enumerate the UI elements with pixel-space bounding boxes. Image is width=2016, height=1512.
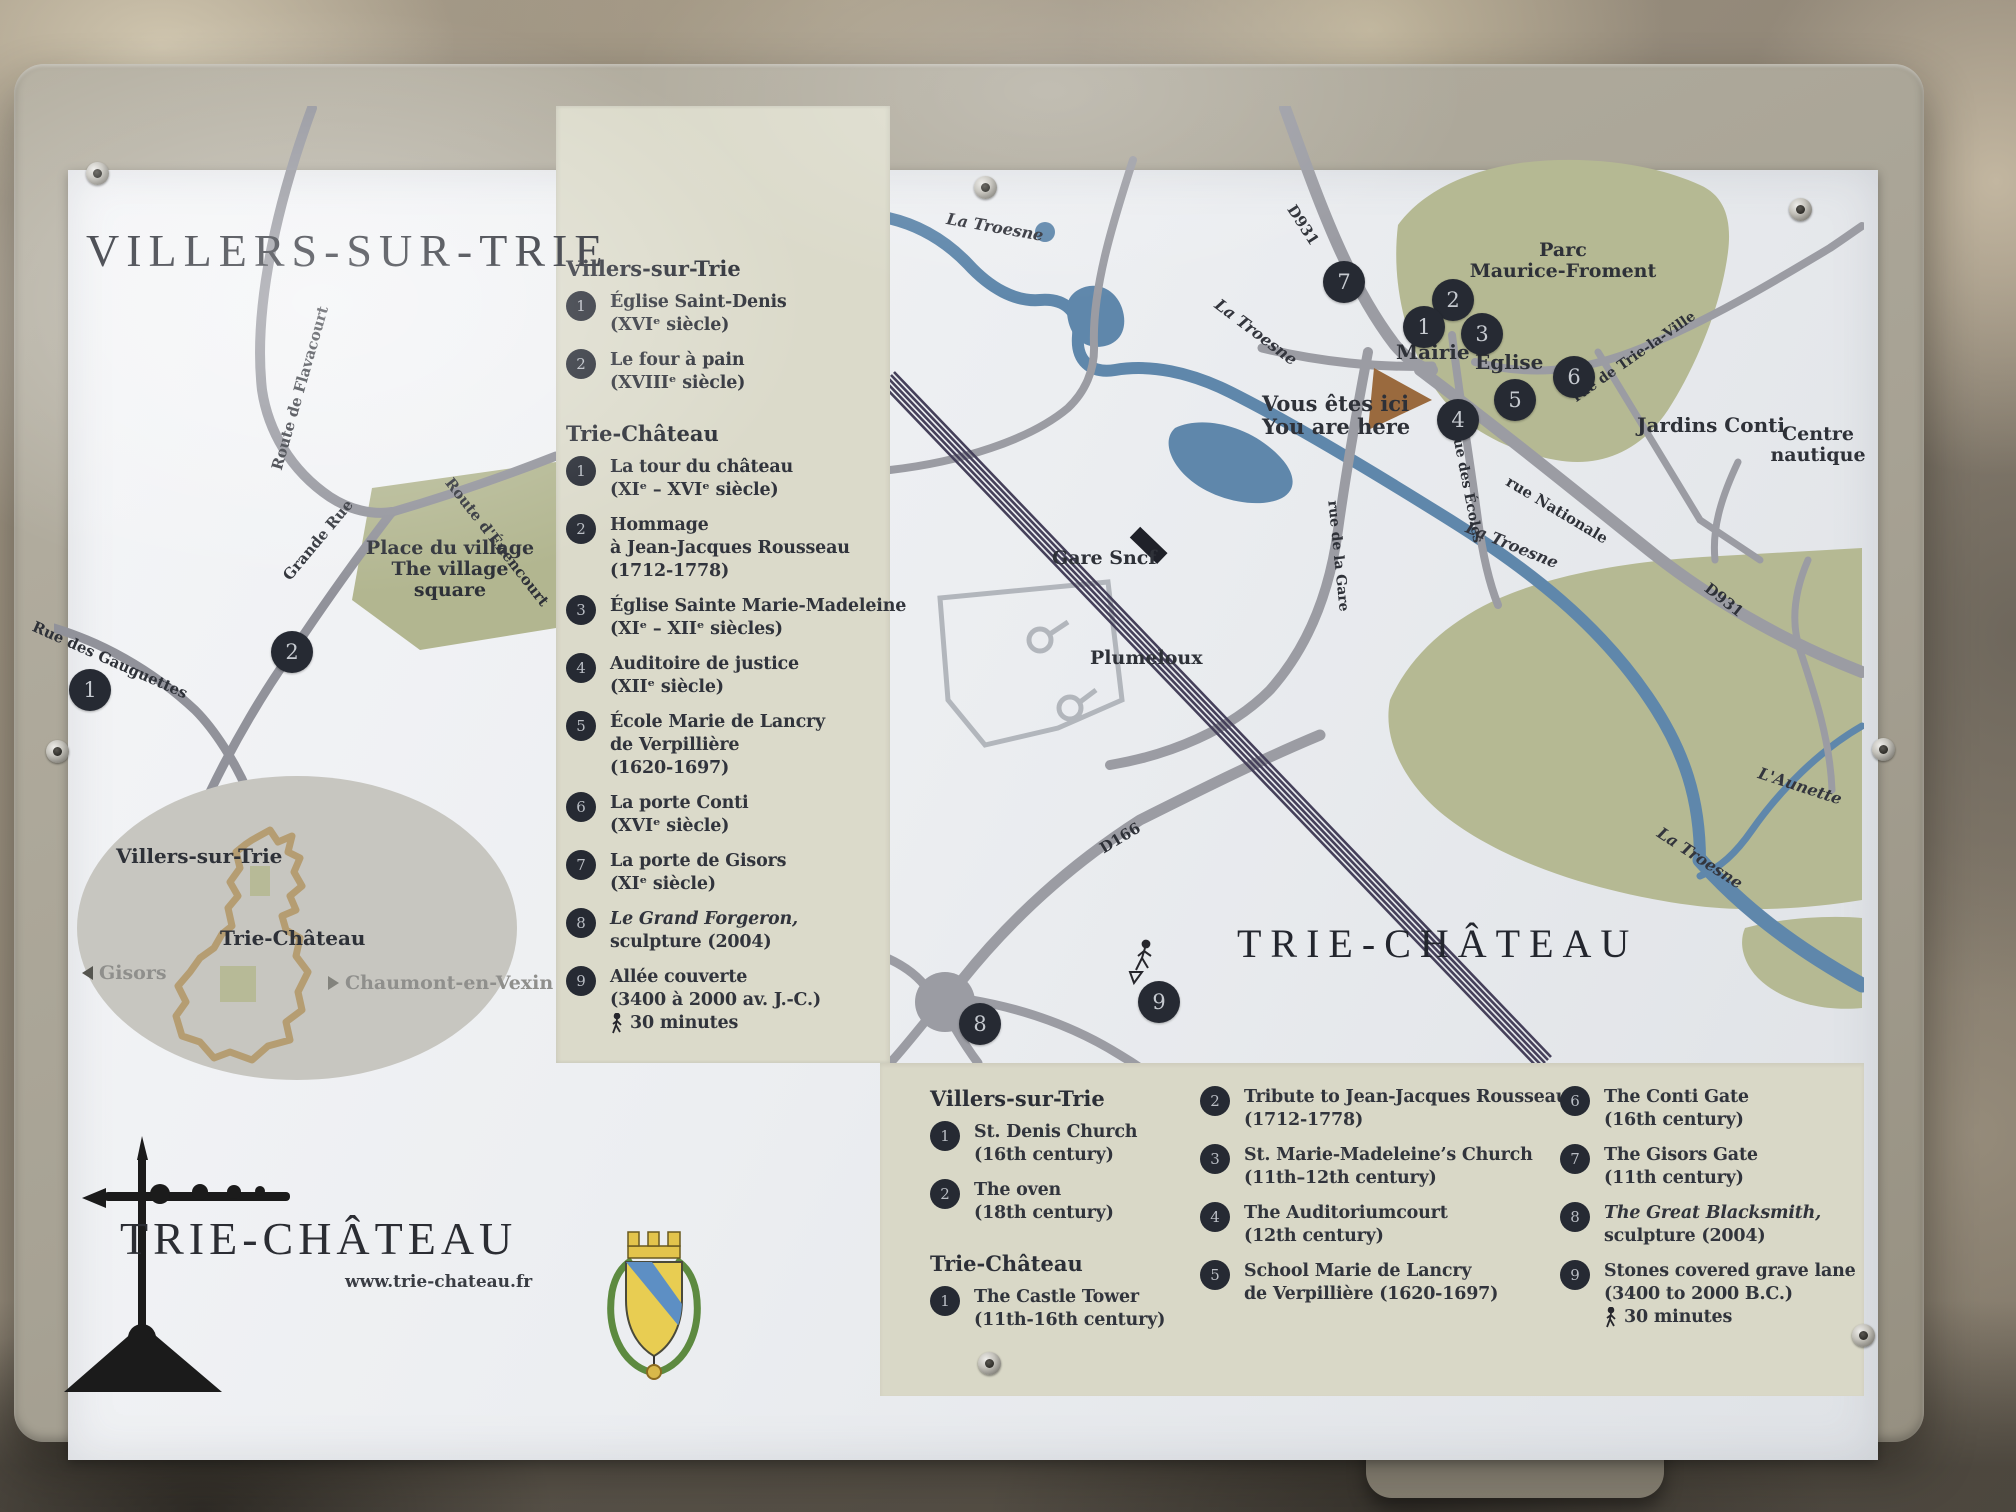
inset-label-trie: Trie-Château <box>220 928 365 949</box>
item-line: Auditoire de justice <box>610 653 799 676</box>
legend-item: 1 St. Denis Church(16th century) <box>930 1121 1210 1167</box>
item-line: (1712-1778) <box>1244 1109 1568 1132</box>
map-marker-7: 7 <box>1323 261 1365 303</box>
item-line: (XVIIIᵉ siècle) <box>610 372 745 395</box>
english-legend-col3: 6 The Conti Gate(16th century) 7 The Gis… <box>1560 1086 1860 1341</box>
left-map-title: VILLERS-SUR-TRIE <box>86 224 609 277</box>
inset-label-gisors: Gisors <box>99 962 167 984</box>
parc-line1: Parc <box>1470 240 1657 261</box>
item-line: (16th century) <box>974 1144 1137 1167</box>
legend-item: 3 Église Sainte Marie-Madeleine(XIᵉ – XI… <box>566 595 882 641</box>
map-marker-9: 9 <box>1138 981 1180 1023</box>
parc-line2: Maurice-Froment <box>1470 261 1657 282</box>
inset-direction-chaumont: Chaumont-en-Vexin <box>328 972 553 994</box>
screw-top-center <box>974 176 997 199</box>
item-line: Le four à pain <box>610 349 745 372</box>
walking-trail-icon <box>1130 941 1151 983</box>
item-line: (XVIᵉ siècle) <box>610 314 787 337</box>
item-line: (3400 à 2000 av. J.-C.) <box>610 989 821 1012</box>
centre-line1: Centre <box>1770 424 1865 445</box>
item-line: (12th century) <box>1244 1225 1448 1248</box>
item-line: The Great Blacksmith, <box>1604 1202 1821 1225</box>
legend-item: 1 La tour du château(XIᵉ – XVIᵉ siècle) <box>566 456 882 502</box>
walking-icon <box>1604 1307 1618 1329</box>
gare-sncf-label: Gare Sncf <box>1052 548 1157 569</box>
legend-item: 1 The Castle Tower(11th-16th century) <box>930 1286 1210 1332</box>
item-line: sculpture (2004) <box>610 931 798 954</box>
legend-item: 6 The Conti Gate(16th century) <box>1560 1086 1860 1132</box>
legend-item: 4 Auditoire de justice(XIIᵉ siècle) <box>566 653 882 699</box>
inset-label-chaumont: Chaumont-en-Vexin <box>345 972 553 994</box>
legend-marker-2: 2 <box>566 349 596 379</box>
item-line: (XVIᵉ siècle) <box>610 815 748 838</box>
item-line: (18th century) <box>974 1202 1114 1225</box>
item-line: Église Saint-Denis <box>610 291 787 314</box>
item-line: St. Denis Church <box>974 1121 1137 1144</box>
trie-chateau-map-title: TRIE-CHÂTEAU <box>1237 920 1638 967</box>
legend-marker-6: 6 <box>1560 1086 1590 1116</box>
legend-en-villers-title: Villers-sur-Trie <box>930 1086 1210 1111</box>
legend-item: 2 Tribute to Jean-Jacques Rousseau(1712-… <box>1200 1086 1540 1132</box>
item-line: Allée couverte <box>610 966 821 989</box>
item-line: (16th century) <box>1604 1109 1749 1132</box>
village-square-label: Place du village The village square <box>366 538 534 601</box>
item-line: The oven <box>974 1179 1114 1202</box>
item-line: de Verpillière <box>610 734 825 757</box>
item-line: (XIᵉ siècle) <box>610 873 786 896</box>
jardins-conti-label: Jardins Conti <box>1637 415 1785 436</box>
legend-marker-3: 3 <box>1200 1144 1230 1174</box>
legend-item: 9 Stones covered grave lane (3400 to 200… <box>1560 1260 1860 1329</box>
item-line: Le Grand Forgeron, <box>610 908 798 931</box>
item-line: La porte de Gisors <box>610 850 786 873</box>
legend-marker-3: 3 <box>566 595 596 625</box>
screw-bottom-center <box>978 1352 1001 1375</box>
legend-marker-5: 5 <box>1200 1260 1230 1290</box>
legend-item: 7 The Gisors Gate(11th century) <box>1560 1144 1860 1190</box>
screw-mid-right <box>1872 738 1895 761</box>
item-line: à Jean-Jacques Rousseau <box>610 537 850 560</box>
legend-item: 7 La porte de Gisors(XIᵉ siècle) <box>566 850 882 896</box>
legend-item: 8 The Great Blacksmith,sculpture (2004) <box>1560 1202 1860 1248</box>
inset-label-villers: Villers-sur-Trie <box>116 846 282 867</box>
item-line: (1712-1778) <box>610 560 850 583</box>
screw-top-right <box>1789 198 1812 221</box>
you-are-here-fr: Vous êtes ici <box>1262 392 1410 415</box>
village-square-line1: Place du village <box>366 538 534 559</box>
item-line: (11th-16th century) <box>974 1309 1165 1332</box>
eglise-label: Église <box>1475 352 1543 373</box>
legend-item: 2 The oven(18th century) <box>930 1179 1210 1225</box>
item-line: École Marie de Lancry <box>610 711 825 734</box>
legend-item: 8 Le Grand Forgeron,sculpture (2004) <box>566 908 882 954</box>
centre-nautique-label: Centre nautique <box>1770 424 1865 466</box>
screw-mid-left <box>46 740 69 763</box>
legend-marker-1: 1 <box>930 1286 960 1316</box>
item-line: (11th century) <box>1604 1167 1758 1190</box>
map-marker-6: 6 <box>1553 356 1595 398</box>
item-line: (XIIᵉ siècle) <box>610 676 799 699</box>
photo-of-information-panel: VILLERS-SUR-TRIE Route de Flavacourt Gra… <box>0 0 2016 1512</box>
item-line: The Conti Gate <box>1604 1086 1749 1109</box>
legend-marker-1: 1 <box>566 456 596 486</box>
item-line: Hommage <box>610 514 850 537</box>
item-line: (1620-1697) <box>610 757 825 780</box>
legend-marker-6: 6 <box>566 792 596 822</box>
legend-marker-4: 4 <box>1200 1202 1230 1232</box>
map-marker-1: 1 <box>1403 306 1445 348</box>
village-square-line3: square <box>366 580 534 601</box>
ponds <box>1035 222 1293 503</box>
legend-item: 6 La porte Conti(XVIᵉ siècle) <box>566 792 882 838</box>
map-marker-villers-2: 2 <box>271 631 313 673</box>
item-line: The Castle Tower <box>974 1286 1165 1309</box>
screw-bottom-right <box>1852 1324 1875 1347</box>
legend-item: 5 School Marie de Lancryde Verpillière (… <box>1200 1260 1540 1306</box>
map-marker-8: 8 <box>959 1003 1001 1045</box>
legend-marker-8: 8 <box>1560 1202 1590 1232</box>
item-line: (XIᵉ – XIIᵉ siècles) <box>610 618 906 641</box>
item-line: The Gisors Gate <box>1604 1144 1758 1167</box>
legend-marker-4: 4 <box>566 653 596 683</box>
you-are-here-label: Vous êtes ici You are here <box>1262 392 1410 438</box>
you-are-here-en: You are here <box>1262 415 1410 438</box>
walk-time: 30 minutes <box>1624 1306 1732 1329</box>
map-marker-4: 4 <box>1437 399 1479 441</box>
item-line: Stones covered grave lane <box>1604 1260 1856 1283</box>
legend-item: 3 St. Marie-Madeleine’s Church(11th–12th… <box>1200 1144 1540 1190</box>
french-legend: Villers-sur-Trie 1 Église Saint-Denis(XV… <box>566 256 882 1047</box>
legend-item: 2 Le four à pain(XVIIIᵉ siècle) <box>566 349 882 395</box>
item-line: sculpture (2004) <box>1604 1225 1821 1248</box>
left-map-roads <box>54 108 556 792</box>
coat-of-arms <box>611 1232 698 1379</box>
logo-title: TRIE-CHÂTEAU <box>120 1212 517 1265</box>
legend-marker-9: 9 <box>1560 1260 1590 1290</box>
legend-fr-trie-title: Trie-Château <box>566 421 882 446</box>
legend-marker-7: 7 <box>566 850 596 880</box>
screw-top-left <box>86 162 109 185</box>
legend-fr-villers-title: Villers-sur-Trie <box>566 256 882 281</box>
legend-marker-2: 2 <box>566 514 596 544</box>
arrow-right-icon <box>328 976 339 990</box>
item-line: La tour du château <box>610 456 793 479</box>
legend-item: 1 Église Saint-Denis(XVIᵉ siècle) <box>566 291 882 337</box>
legend-marker-2: 2 <box>1200 1086 1230 1116</box>
legend-marker-8: 8 <box>566 908 596 938</box>
logo-website-url: www.trie-chateau.fr <box>345 1272 532 1292</box>
item-line: Tribute to Jean-Jacques Rousseau <box>1244 1086 1568 1109</box>
legend-marker-5: 5 <box>566 711 596 741</box>
item-line: (3400 to 2000 B.C.) <box>1604 1283 1856 1306</box>
walk-time: 30 minutes <box>630 1012 738 1035</box>
item-line: School Marie de Lancry <box>1244 1260 1498 1283</box>
walking-icon <box>610 1013 624 1035</box>
legend-item: 5 École Marie de Lancryde Verpillière(16… <box>566 711 882 780</box>
item-line: (XIᵉ – XVIᵉ siècle) <box>610 479 793 502</box>
map-marker-5: 5 <box>1494 379 1536 421</box>
legend-item: 4 The Auditoriumcourt(12th century) <box>1200 1202 1540 1248</box>
legend-marker-7: 7 <box>1560 1144 1590 1174</box>
item-line: (11th–12th century) <box>1244 1167 1533 1190</box>
legend-marker-1: 1 <box>930 1121 960 1151</box>
item-line: St. Marie-Madeleine’s Church <box>1244 1144 1533 1167</box>
legend-en-trie-title: Trie-Château <box>930 1251 1210 1276</box>
english-legend-col1: Villers-sur-Trie 1 St. Denis Church(16th… <box>930 1086 1210 1344</box>
map-marker-3: 3 <box>1461 313 1503 355</box>
plumeloux-label: Plumeloux <box>1090 648 1203 669</box>
legend-item: 2 Hommageà Jean-Jacques Rousseau(1712-17… <box>566 514 882 583</box>
legend-item: 9 Allée couverte (3400 à 2000 av. J.-C.)… <box>566 966 882 1035</box>
inset-direction-gisors: Gisors <box>82 962 167 984</box>
legend-marker-1: 1 <box>566 291 596 321</box>
item-line: de Verpillière (1620-1697) <box>1244 1283 1498 1306</box>
centre-line2: nautique <box>1770 445 1865 466</box>
map-marker-villers-1: 1 <box>69 669 111 711</box>
english-legend-col2: 2 Tribute to Jean-Jacques Rousseau(1712-… <box>1200 1086 1540 1318</box>
parc-label: Parc Maurice-Froment <box>1470 240 1657 282</box>
arrow-left-icon <box>82 966 93 980</box>
item-line: Église Sainte Marie-Madeleine <box>610 595 906 618</box>
legend-marker-2: 2 <box>930 1179 960 1209</box>
item-line: The Auditoriumcourt <box>1244 1202 1448 1225</box>
item-line: La porte Conti <box>610 792 748 815</box>
village-square-line2: The village <box>366 559 534 580</box>
legend-marker-9: 9 <box>566 966 596 996</box>
